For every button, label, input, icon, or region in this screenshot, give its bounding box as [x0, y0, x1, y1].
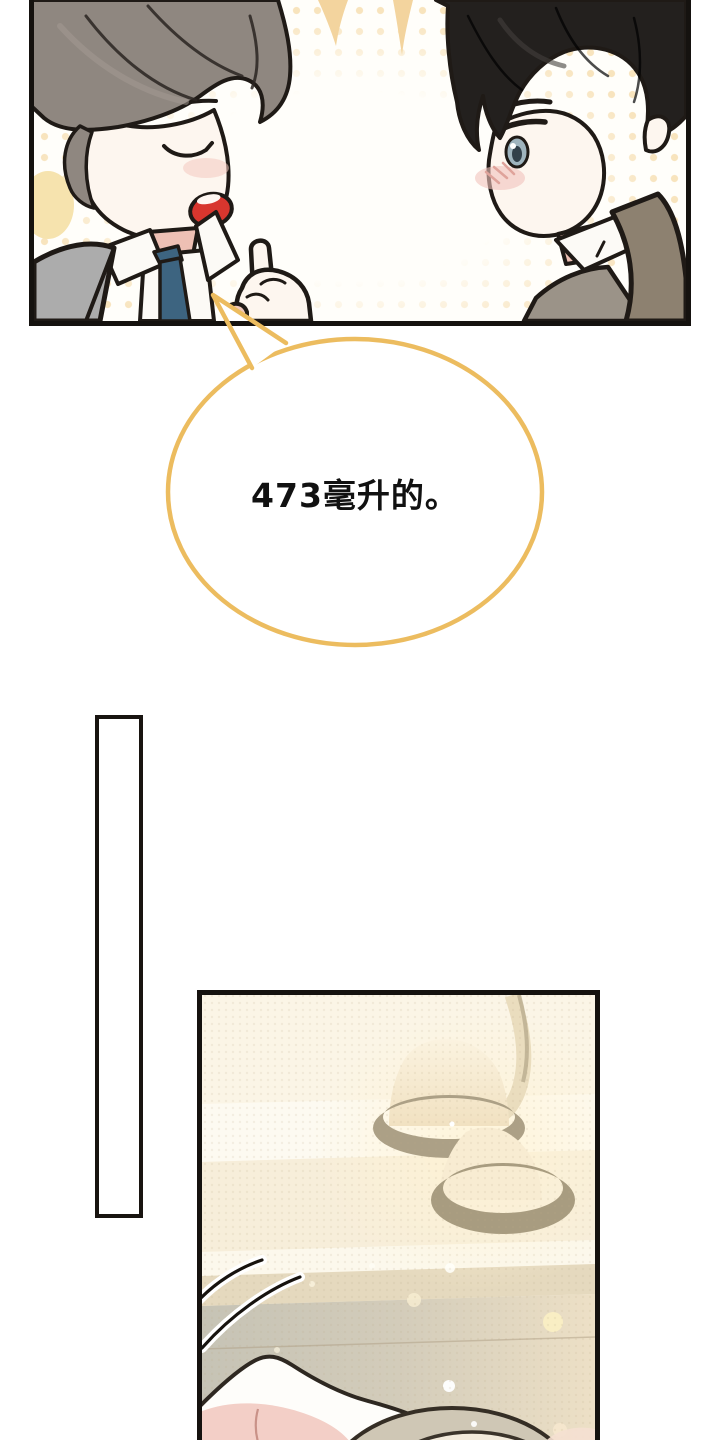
speech-bubble	[168, 295, 542, 645]
comic-page: 473毫升的。	[0, 0, 720, 1440]
bottom-comic-panel	[197, 990, 600, 1440]
bottom-panel-illustration	[202, 995, 595, 1440]
vertical-divider-rect	[95, 715, 143, 1218]
sparkle-rays-icon	[318, 0, 413, 55]
speech-bubble-text: 473毫升的。	[225, 477, 485, 515]
right-character-illustration	[436, 0, 686, 321]
top-panel-illustration	[34, 0, 686, 321]
left-character-illustration	[34, 0, 311, 321]
pointing-finger-icon	[226, 241, 311, 321]
top-comic-panel	[29, 0, 691, 326]
